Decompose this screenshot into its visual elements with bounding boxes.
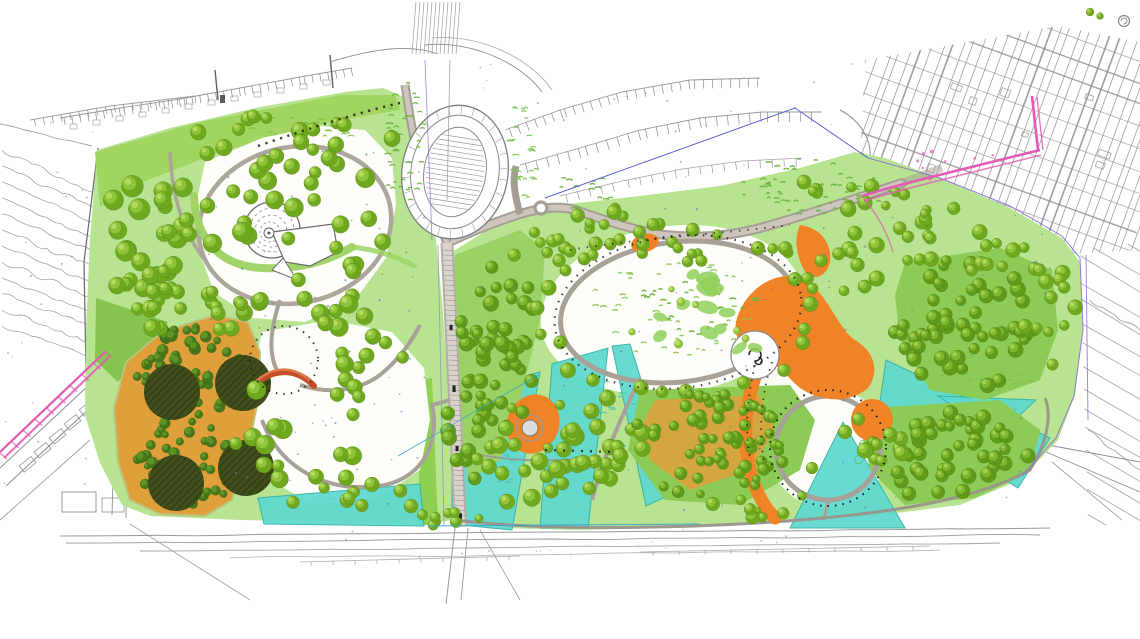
corner-symbol: [1119, 16, 1130, 27]
masterplan-drawing: [0, 0, 1140, 639]
masterplan-svg: [0, 0, 1140, 639]
